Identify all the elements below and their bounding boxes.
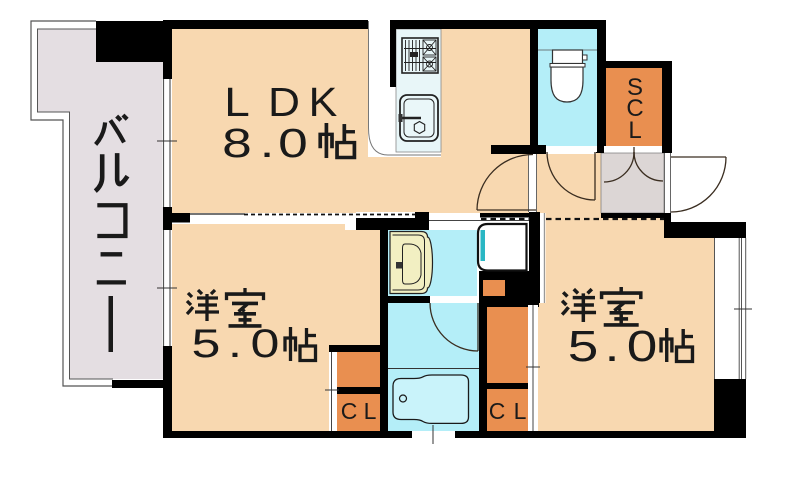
svg-text:0: 0	[278, 121, 308, 167]
svg-text:5: 5	[568, 321, 599, 370]
svg-text:L: L	[514, 398, 527, 424]
svg-text:D: D	[268, 79, 300, 125]
svg-text:L: L	[224, 80, 250, 125]
svg-text:.: .	[604, 321, 619, 370]
svg-text:C: C	[341, 398, 358, 424]
svg-text:.: .	[260, 121, 275, 167]
svg-text:5: 5	[192, 321, 221, 366]
svg-text:0: 0	[627, 321, 658, 370]
svg-text:L: L	[364, 398, 377, 424]
svg-text:C: C	[489, 398, 506, 424]
svg-text:K: K	[309, 79, 338, 125]
svg-text:L: L	[628, 117, 641, 144]
svg-text:8: 8	[222, 121, 252, 167]
